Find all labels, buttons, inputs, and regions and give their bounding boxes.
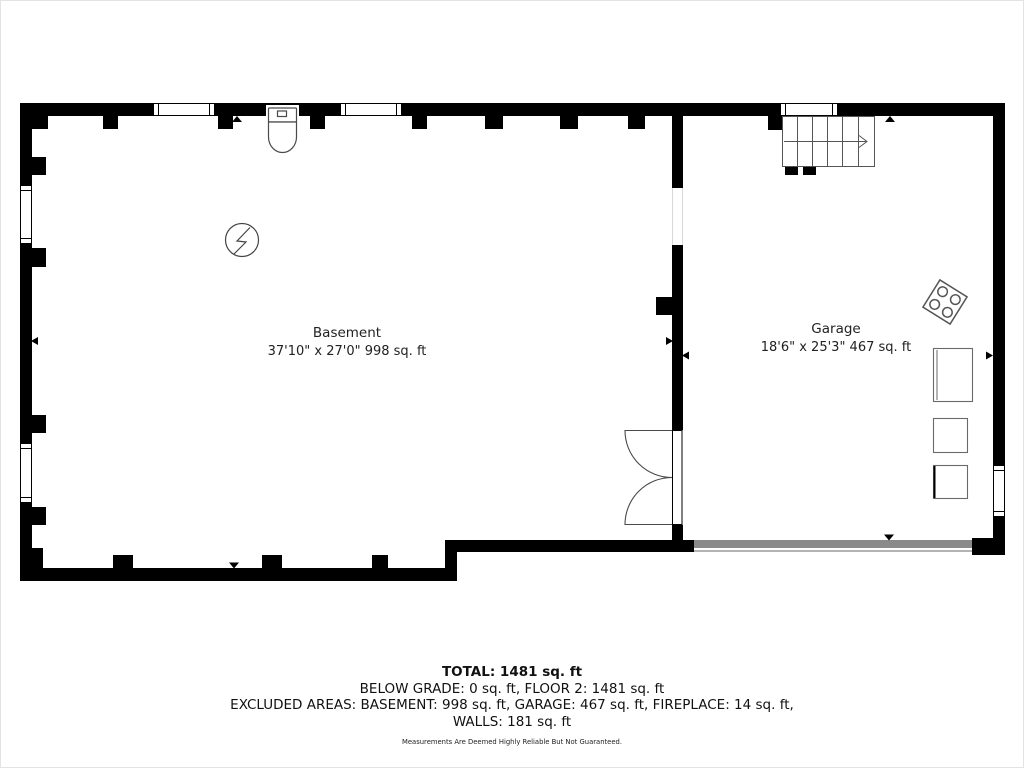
garage-door [694, 540, 972, 552]
window-left-1 [21, 186, 32, 244]
room-dims-basement: 37'10" x 27'0" 998 sq. ft [268, 344, 427, 359]
wall-pillar [768, 116, 782, 130]
room-dims-garage: 18'6" x 25'3" 467 sq. ft [761, 340, 912, 355]
double-door-icon [625, 431, 682, 525]
wall-segment [445, 540, 694, 552]
wall-pillar [113, 555, 133, 568]
summary-below-grade: BELOW GRADE: 0 sq. ft, FLOOR 2: 1481 sq.… [0, 681, 1024, 698]
wall-pillar [32, 248, 46, 267]
wall-pillar [628, 116, 645, 129]
wall-segment [20, 568, 457, 581]
measure-marker [666, 337, 673, 345]
disclaimer: Measurements Are Deemed Highly Reliable … [0, 738, 1024, 747]
wall-segment [656, 297, 672, 315]
wall-pillar [372, 555, 388, 568]
summary-total: TOTAL: 1481 sq. ft [0, 664, 1024, 681]
wall-segment [672, 245, 683, 430]
window-right [994, 466, 1005, 517]
measure-marker [885, 116, 895, 122]
wall-segment [20, 103, 48, 129]
wall-pillar [785, 167, 798, 175]
wall-pillar [262, 555, 282, 568]
measure-marker [232, 116, 242, 122]
measure-marker [31, 337, 38, 345]
wall-pillar [803, 167, 816, 175]
wall-pillar [32, 415, 46, 433]
wall-pillar [560, 116, 578, 129]
summary-excluded-areas: EXCLUDED AREAS: BASEMENT: 998 sq. ft, GA… [0, 697, 1024, 714]
measure-marker [682, 352, 689, 360]
measure-marker [229, 563, 239, 569]
wall-pillar [485, 116, 503, 129]
wall-pillar [218, 116, 233, 129]
toilet-icon [266, 105, 299, 153]
appliances [934, 349, 973, 499]
wall-pillar [32, 507, 46, 525]
room-label-garage: Garage [811, 321, 860, 337]
wall-pillar [412, 116, 427, 129]
window-top-1 [154, 104, 215, 116]
window-top-2 [341, 104, 402, 116]
wall-segment [20, 103, 32, 581]
wall-segment [972, 538, 1005, 555]
measure-marker [884, 535, 894, 541]
electrical-panel-icon [226, 224, 259, 257]
wall-pillar [103, 116, 118, 129]
room-label-basement: Basement [313, 325, 381, 341]
wall-opening [673, 188, 683, 245]
window-left-2 [21, 444, 32, 503]
floorplan-svg: Basement 37'10" x 27'0" 998 sq. ft Garag… [0, 0, 1024, 768]
cooktop-icon [923, 280, 967, 324]
wall-segment [672, 103, 683, 188]
measure-marker [986, 352, 993, 360]
wall-pillar [32, 157, 46, 175]
wall-pillar [310, 116, 325, 129]
summary-walls: WALLS: 181 sq. ft [0, 714, 1024, 731]
wall-segment [672, 525, 683, 552]
appliance [934, 349, 973, 402]
stairs-icon [783, 117, 875, 167]
summary-footer: TOTAL: 1481 sq. ft BELOW GRADE: 0 sq. ft… [0, 664, 1024, 747]
wall-segment [20, 548, 43, 581]
appliance [934, 419, 968, 453]
appliance [934, 466, 968, 499]
wall-segment [993, 103, 1005, 465]
window-top-stairs [781, 104, 838, 116]
